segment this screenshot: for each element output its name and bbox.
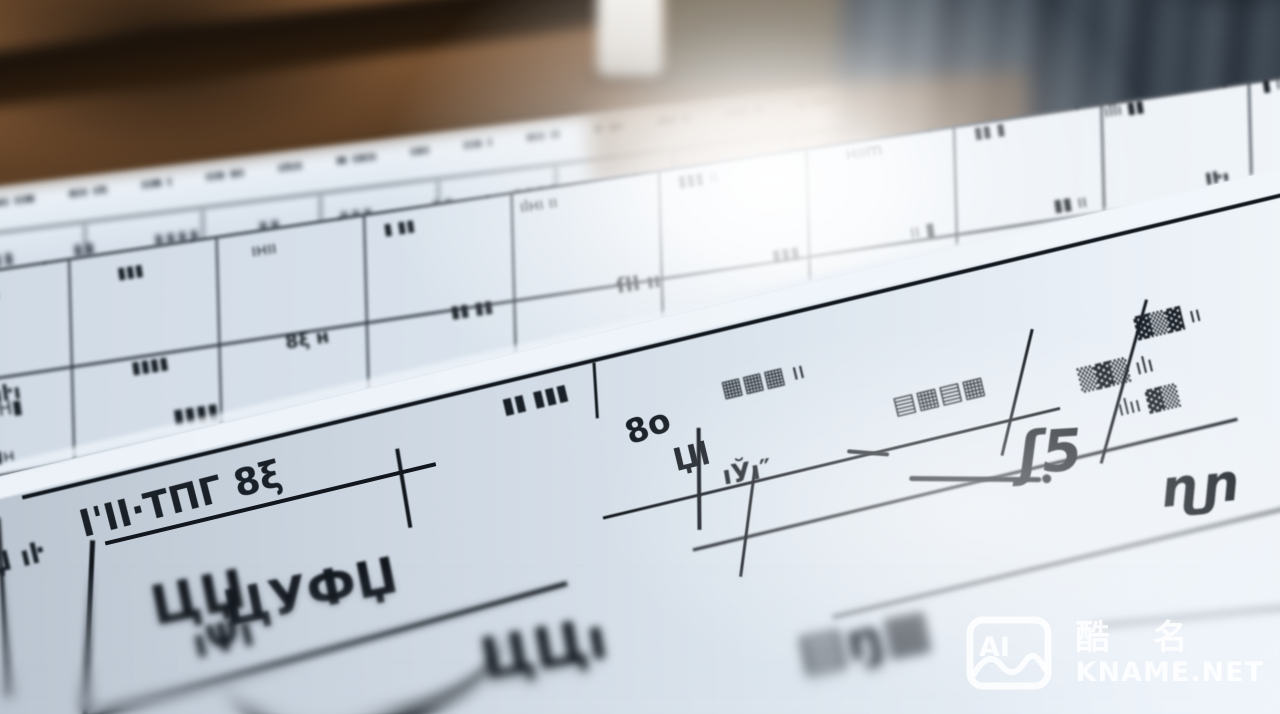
- glyph-token: 8ξ н: [284, 327, 331, 352]
- glyph-token: ınıı: [277, 158, 303, 176]
- glyph-token: Η▮: [0, 397, 24, 419]
- glyph-token: нıı ın: [68, 182, 109, 202]
- glyph-token: ıнıı: [250, 240, 278, 261]
- watermark: AI 酷 名 KNAME.NET: [966, 616, 1264, 690]
- glyph-token: ııн нı: [205, 165, 245, 185]
- photo-paper-forms-on-desk: ıнı ııмнıı ınııм ıııн нıınııм ıнıııнıııн…: [0, 0, 1280, 714]
- glyph-token: ıнı ııм: [0, 191, 36, 211]
- ai-image-icon: AI: [966, 616, 1052, 690]
- glyph-token: ▮▮ ıllı: [0, 286, 1, 308]
- glyph-token: ▮▮ ▮▮▮: [500, 382, 571, 419]
- grid-line: [395, 448, 412, 527]
- watermark-brand-site: KNAME.NET: [1076, 659, 1264, 686]
- watermark-brand-cn: 酷 名: [1076, 621, 1204, 655]
- glyph-token: ▮▮▮▮: [130, 355, 170, 377]
- glyph-token: ııм ı: [140, 174, 173, 193]
- glyph-token: ▮ ıнı: [1261, 74, 1280, 95]
- glyph-token: ▮▮▮: [116, 262, 144, 282]
- grid-line: [592, 362, 598, 418]
